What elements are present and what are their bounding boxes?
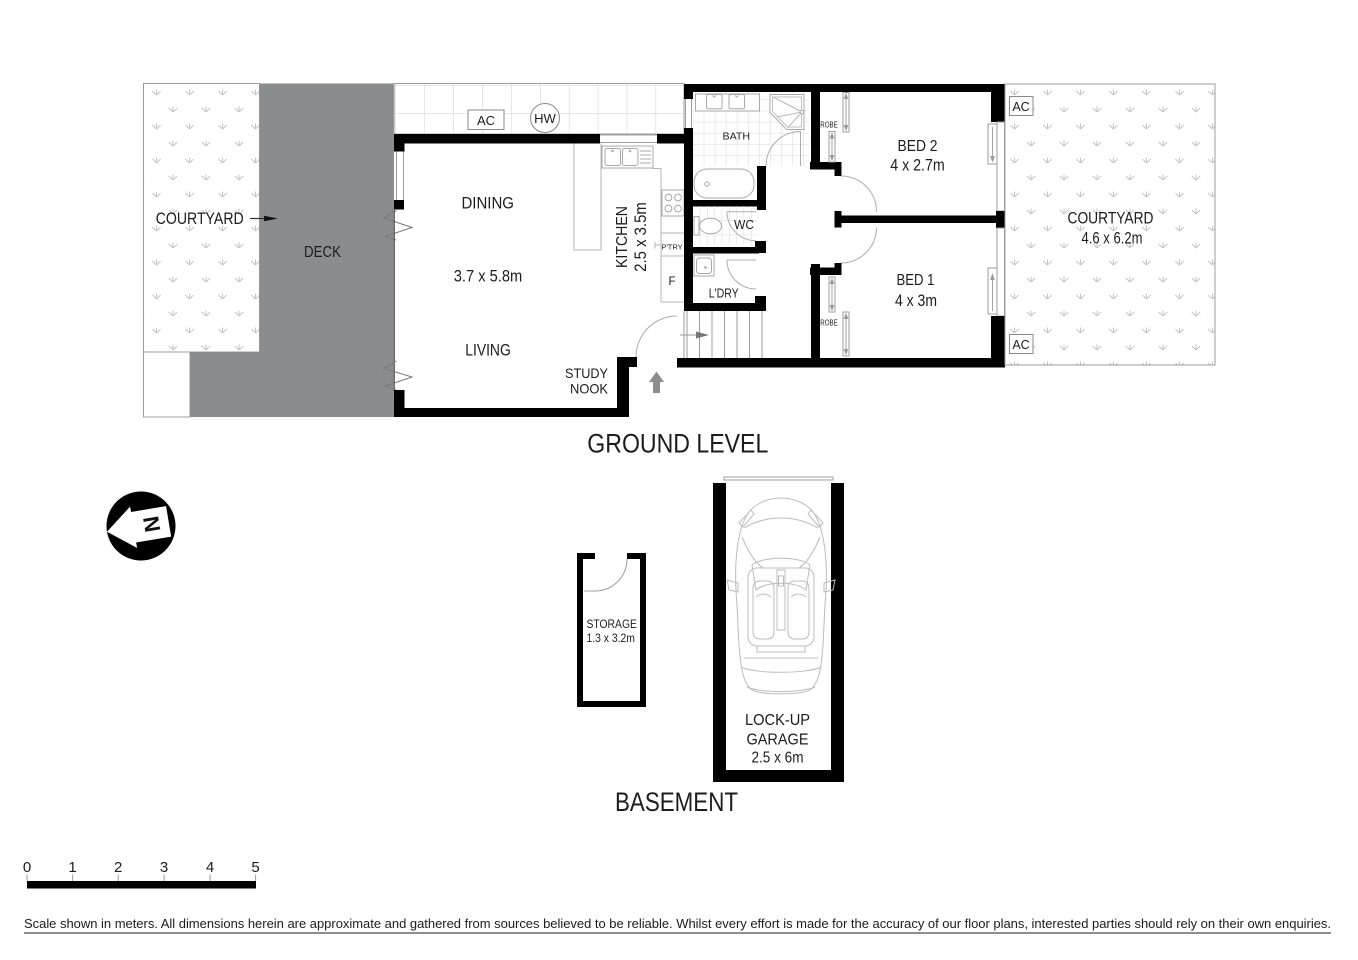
svg-text:DINING: DINING (461, 195, 514, 213)
svg-text:ROBE: ROBE (820, 120, 838, 130)
svg-text:STORAGE: STORAGE (586, 619, 637, 631)
svg-text:0: 0 (23, 859, 31, 876)
svg-text:4 x 3m: 4 x 3m (895, 292, 937, 310)
svg-text:GROUND LEVEL: GROUND LEVEL (587, 429, 768, 459)
svg-text:3: 3 (160, 859, 168, 876)
svg-text:BED 1: BED 1 (897, 272, 935, 289)
svg-text:3.7 x 5.8m: 3.7 x 5.8m (454, 267, 523, 286)
svg-text:4: 4 (206, 859, 214, 876)
svg-text:4.6 x 6.2m: 4.6 x 6.2m (1082, 230, 1143, 248)
svg-text:AC: AC (1012, 338, 1029, 352)
svg-text:BASEMENT: BASEMENT (615, 787, 738, 817)
svg-text:2: 2 (114, 859, 122, 876)
svg-text:AC: AC (1012, 100, 1029, 114)
svg-text:BED 2: BED 2 (898, 138, 938, 155)
svg-text:L'DRY: L'DRY (709, 287, 740, 301)
svg-text:2.5 x 6m: 2.5 x 6m (752, 750, 804, 767)
svg-text:BATH: BATH (723, 131, 751, 143)
svg-text:5: 5 (251, 859, 259, 876)
svg-text:COURTYARD: COURTYARD (156, 210, 244, 228)
svg-text:LIVING: LIVING (465, 342, 511, 360)
svg-text:WC: WC (734, 217, 754, 232)
svg-text:GARAGE: GARAGE (747, 732, 809, 749)
svg-text:1.3 x 3.2m: 1.3 x 3.2m (586, 633, 635, 645)
svg-text:NOOK: NOOK (570, 381, 609, 397)
svg-text:LOCK-UP: LOCK-UP (745, 712, 810, 729)
svg-text:STUDY: STUDY (565, 365, 609, 381)
svg-text:2.5 x 3.5m: 2.5 x 3.5m (632, 202, 650, 272)
svg-text:1: 1 (68, 859, 76, 876)
svg-text:KITCHEN: KITCHEN (614, 206, 631, 268)
svg-text:Scale shown in meters. All dim: Scale shown in meters. All dimensions he… (24, 916, 1331, 931)
svg-text:P'TRY: P'TRY (661, 243, 682, 252)
svg-text:DECK: DECK (304, 244, 341, 261)
svg-text:HW: HW (534, 111, 556, 126)
svg-text:4 x 2.7m: 4 x 2.7m (890, 157, 945, 175)
svg-text:COURTYARD: COURTYARD (1068, 210, 1154, 228)
svg-text:AC: AC (477, 113, 495, 128)
svg-text:F: F (668, 276, 675, 288)
svg-text:ROBE: ROBE (820, 318, 838, 328)
